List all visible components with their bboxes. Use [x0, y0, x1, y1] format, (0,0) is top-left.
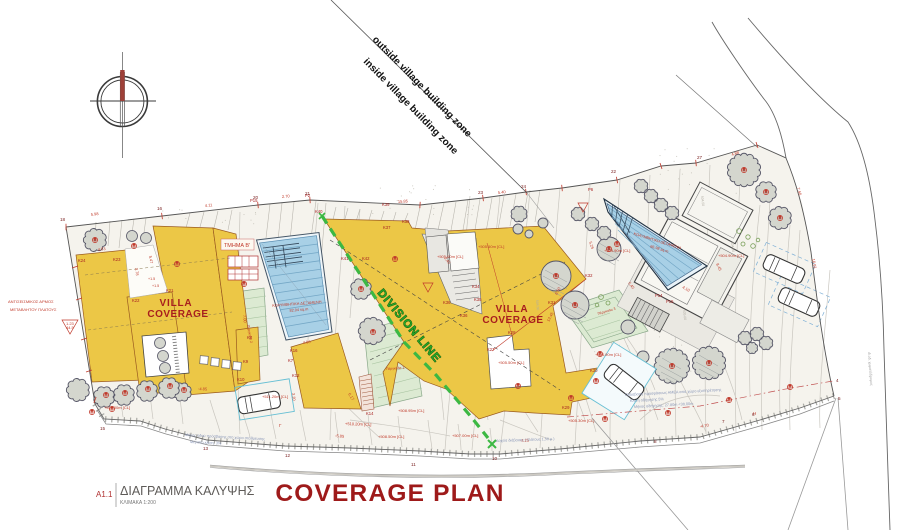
svg-text:K30: K30 [590, 368, 598, 373]
svg-text:+507.00m [CL]: +507.00m [CL] [452, 433, 478, 438]
svg-text:Μέγιστη κλίση: 3%: Μέγιστη κλίση: 3% [190, 440, 222, 446]
svg-text:K29: K29 [562, 405, 570, 410]
svg-text:ΜΕΤΑΒΛΗΤΟΥ ΠΛΑΤΟΥΣ: ΜΕΤΑΒΛΗΤΟΥ ΠΛΑΤΟΥΣ [10, 307, 57, 312]
svg-text:27: 27 [697, 155, 703, 160]
svg-text:+505.50m [CL]: +505.50m [CL] [498, 360, 524, 365]
svg-text:ΚΛΙΜΑΚΑ 1:200: ΚΛΙΜΑΚΑ 1:200 [120, 500, 156, 506]
svg-text:K22: K22 [132, 298, 140, 303]
svg-text:+505.50m [CL]: +505.50m [CL] [478, 244, 504, 249]
svg-text:15.85: 15.85 [398, 198, 409, 204]
svg-text:K12: K12 [292, 373, 300, 378]
svg-text:-5.85: -5.85 [335, 433, 345, 439]
svg-text:COVERAGE: COVERAGE [147, 309, 208, 320]
svg-text:K31: K31 [548, 300, 556, 305]
svg-text:12: 12 [285, 453, 291, 458]
svg-text:P15: P15 [666, 299, 674, 304]
svg-text:4.11: 4.11 [205, 202, 214, 208]
svg-text:K41: K41 [341, 256, 349, 261]
svg-text:+1.5: +1.5 [152, 284, 159, 288]
svg-text:ΑΝΤΙΣΕΙΣΜΙΚΟΣ ΑΡΜΟΣ: ΑΝΤΙΣΕΙΣΜΙΚΟΣ ΑΡΜΟΣ [8, 299, 54, 304]
svg-text:+511.20m [CL]: +511.20m [CL] [262, 394, 288, 399]
svg-text:K10: K10 [237, 377, 245, 382]
svg-text:3.20: 3.20 [291, 393, 297, 402]
svg-text:+510.20m [CL]: +510.20m [CL] [345, 421, 372, 427]
svg-text:P6: P6 [588, 187, 594, 192]
svg-text:2.70: 2.70 [282, 193, 291, 199]
svg-text:5.98: 5.98 [90, 211, 99, 217]
svg-text:24: 24 [521, 184, 527, 189]
svg-text:10: 10 [492, 456, 498, 461]
svg-text:8: 8 [654, 439, 657, 444]
svg-text:7.00: 7.00 [242, 315, 248, 324]
svg-text:-4.85: -4.85 [198, 386, 208, 392]
svg-text:7: 7 [722, 419, 725, 424]
svg-text:K24: K24 [78, 258, 86, 263]
svg-text:VILLA: VILLA [160, 298, 193, 309]
svg-text:P14: P14 [655, 293, 663, 298]
svg-text:+505.00m [CL]: +505.00m [CL] [437, 254, 463, 259]
svg-text:+508.95m [CL]: +508.95m [CL] [398, 408, 424, 413]
svg-text:COVERAGE PLAN: COVERAGE PLAN [275, 480, 504, 507]
svg-text:K36: K36 [443, 300, 451, 305]
svg-text:K7: K7 [288, 358, 294, 363]
svg-text:4: 4 [836, 378, 839, 383]
svg-text:44.5: 44.5 [66, 325, 75, 330]
svg-text:K14: K14 [366, 411, 374, 416]
svg-text:K40: K40 [315, 209, 323, 214]
svg-text:18: 18 [60, 217, 66, 222]
svg-text:K37: K37 [383, 225, 391, 230]
svg-text:6: 6 [752, 412, 755, 417]
svg-text:K34: K34 [472, 284, 480, 289]
svg-text:+511.00m [CL]: +511.00m [CL] [104, 405, 130, 410]
svg-text:16: 16 [157, 206, 163, 211]
svg-text:22: 22 [611, 169, 617, 174]
svg-text:ΤΜΗΜΑ Β': ΤΜΗΜΑ Β' [224, 243, 250, 249]
svg-text:K28: K28 [508, 330, 516, 335]
svg-text:5: 5 [838, 396, 841, 401]
svg-text:15: 15 [100, 426, 106, 431]
svg-text:K9: K9 [243, 359, 249, 364]
svg-text:K42: K42 [362, 256, 370, 261]
svg-text:23: 23 [478, 190, 484, 195]
svg-text:K27: K27 [487, 347, 495, 352]
svg-text:VILLA: VILLA [496, 304, 529, 315]
svg-text:20: 20 [253, 195, 259, 200]
svg-text:K16: K16 [290, 348, 298, 353]
svg-text:+1.5: +1.5 [148, 277, 155, 281]
svg-text:COVERAGE: COVERAGE [482, 315, 543, 326]
svg-text:5.40: 5.40 [498, 189, 507, 195]
svg-text:K35: K35 [474, 297, 482, 302]
svg-text:K23: K23 [113, 257, 121, 262]
svg-text:13: 13 [203, 446, 209, 451]
svg-text:21: 21 [305, 191, 311, 196]
svg-text:+504.90m [CL]: +504.90m [CL] [718, 253, 744, 258]
svg-text:A1.1: A1.1 [96, 490, 113, 499]
svg-text:ιδ.οδ. χωματόδρομος: ιδ.οδ. χωματόδρομος [867, 352, 873, 386]
svg-text:ΔΙΑΓΡΑΜΜΑ ΚΑΛΥΨΗΣ: ΔΙΑΓΡΑΜΜΑ ΚΑΛΥΨΗΣ [120, 484, 255, 498]
svg-text:+505.30m [CL]: +505.30m [CL] [568, 418, 594, 423]
svg-text:+504.90m [CL]: +504.90m [CL] [595, 352, 621, 357]
svg-text:11: 11 [411, 462, 416, 467]
svg-text:K39: K39 [382, 202, 390, 207]
svg-text:K38: K38 [402, 219, 410, 224]
svg-text:K32: K32 [585, 273, 593, 278]
svg-text:+508.50m [CL]: +508.50m [CL] [378, 434, 404, 439]
svg-text:+504.90m [CL]: +504.90m [CL] [604, 248, 630, 253]
svg-text:K36: K36 [460, 313, 468, 318]
svg-text:K21: K21 [166, 288, 174, 293]
